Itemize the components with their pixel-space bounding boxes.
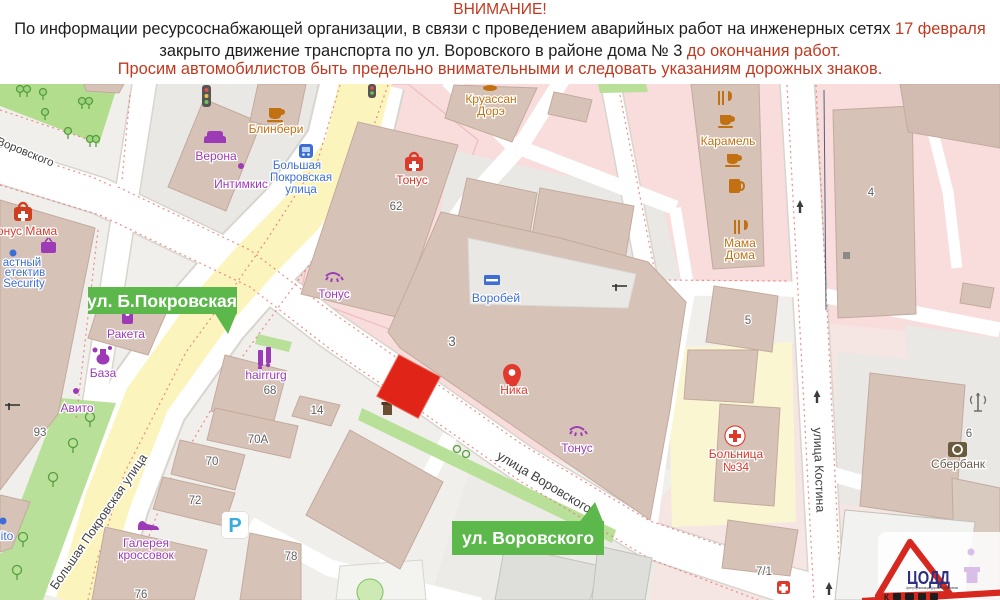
svg-text:ул. Воровского: ул. Воровского — [462, 528, 594, 548]
svg-text:Security: Security — [3, 278, 45, 290]
svg-text:7/1: 7/1 — [756, 566, 772, 578]
svg-text:4: 4 — [868, 187, 875, 199]
svg-text:Верона: Верона — [195, 149, 237, 163]
svg-text:улица Костина: улица Костина — [811, 427, 828, 512]
svg-text:№34: №34 — [723, 460, 750, 474]
svg-text:3: 3 — [448, 334, 456, 349]
svg-text:5: 5 — [745, 315, 751, 327]
svg-text:6: 6 — [966, 428, 972, 440]
svg-text:Больница: Больница — [709, 447, 764, 461]
svg-text:Тонус: Тонус — [561, 441, 593, 455]
svg-text:P: P — [228, 515, 241, 537]
svg-text:улица: улица — [285, 184, 317, 196]
svg-text:76: 76 — [135, 589, 148, 600]
svg-text:Большая: Большая — [273, 160, 321, 172]
svg-text:Блинбери: Блинбери — [249, 122, 304, 136]
svg-text:Тонус: Тонус — [396, 173, 428, 187]
svg-text:78: 78 — [285, 551, 298, 563]
svg-text:Воробей: Воробей — [472, 291, 520, 305]
svg-text:70: 70 — [206, 456, 219, 468]
svg-text:кроссовок: кроссовок — [118, 548, 174, 562]
svg-text:68: 68 — [264, 385, 277, 397]
svg-text:онус Мама: онус Мама — [0, 224, 57, 238]
svg-text:Покровская: Покровская — [270, 172, 332, 184]
svg-text:Тонус: Тонус — [318, 287, 350, 301]
svg-text:К: К — [884, 593, 889, 600]
svg-text:Интимкис: Интимкис — [214, 177, 268, 191]
svg-text:Сбербанк: Сбербанк — [931, 457, 986, 471]
svg-text:ito: ito — [1, 529, 14, 543]
svg-text:14: 14 — [311, 405, 324, 417]
svg-text:72: 72 — [189, 495, 202, 507]
svg-text:93: 93 — [34, 427, 47, 439]
svg-text:Дома: Дома — [725, 248, 755, 262]
svg-text:Дорэ: Дорэ — [477, 104, 505, 118]
svg-text:70А: 70А — [248, 434, 269, 446]
svg-text:Ракета: Ракета — [107, 327, 145, 341]
svg-text:База: База — [90, 366, 117, 380]
svg-text:ул. Б.Покровская: ул. Б.Покровская — [87, 291, 237, 311]
svg-text:62: 62 — [390, 201, 403, 213]
svg-text:ЦентрОрганизацииДорожногоДвиже: ЦентрОрганизацииДорожногоДвижения — [906, 585, 958, 590]
svg-text:Авито: Авито — [60, 401, 93, 415]
svg-text:hairrurg: hairrurg — [245, 368, 286, 382]
svg-text:Карамель: Карамель — [701, 134, 756, 148]
svg-text:Ника: Ника — [500, 383, 528, 397]
